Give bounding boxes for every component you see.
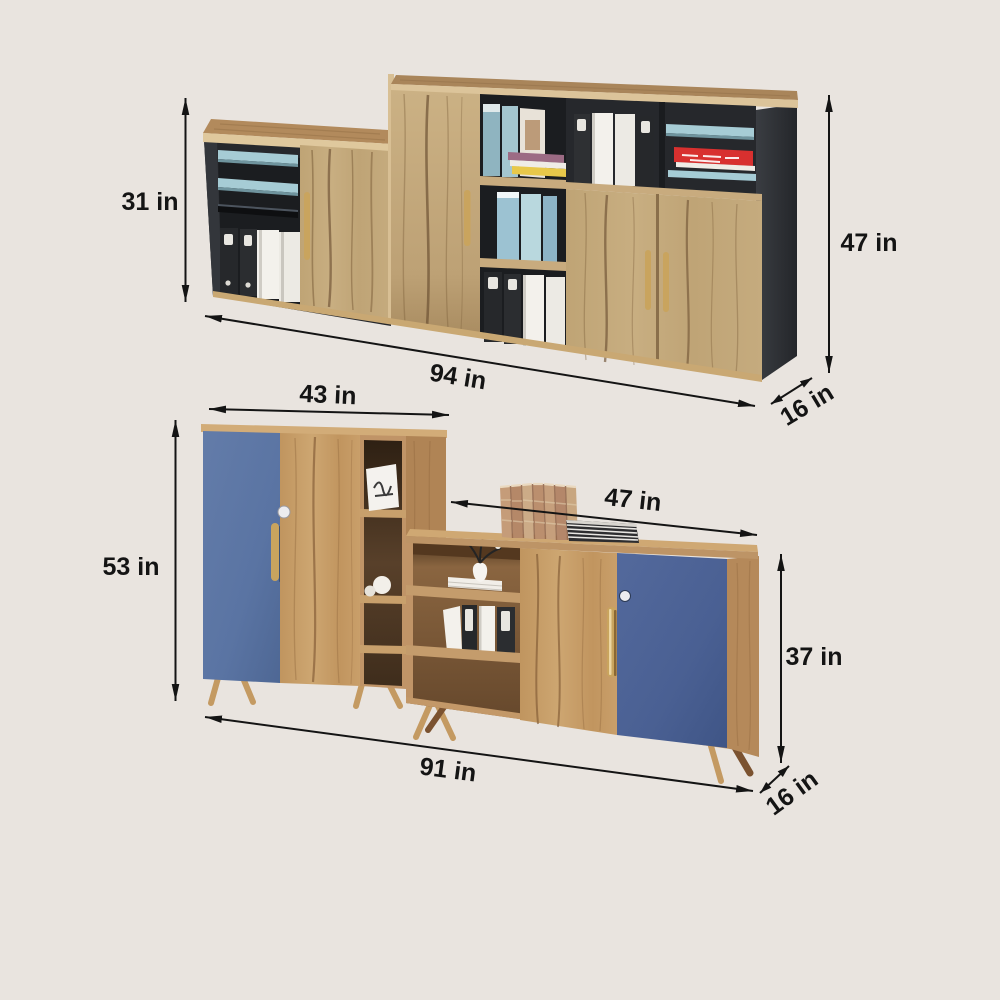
svg-text:31 in: 31 in bbox=[122, 188, 179, 216]
svg-text:47 in: 47 in bbox=[841, 229, 898, 257]
svg-text:43 in: 43 in bbox=[299, 380, 357, 410]
svg-text:53 in: 53 in bbox=[103, 553, 160, 581]
svg-text:37 in: 37 in bbox=[786, 643, 843, 671]
